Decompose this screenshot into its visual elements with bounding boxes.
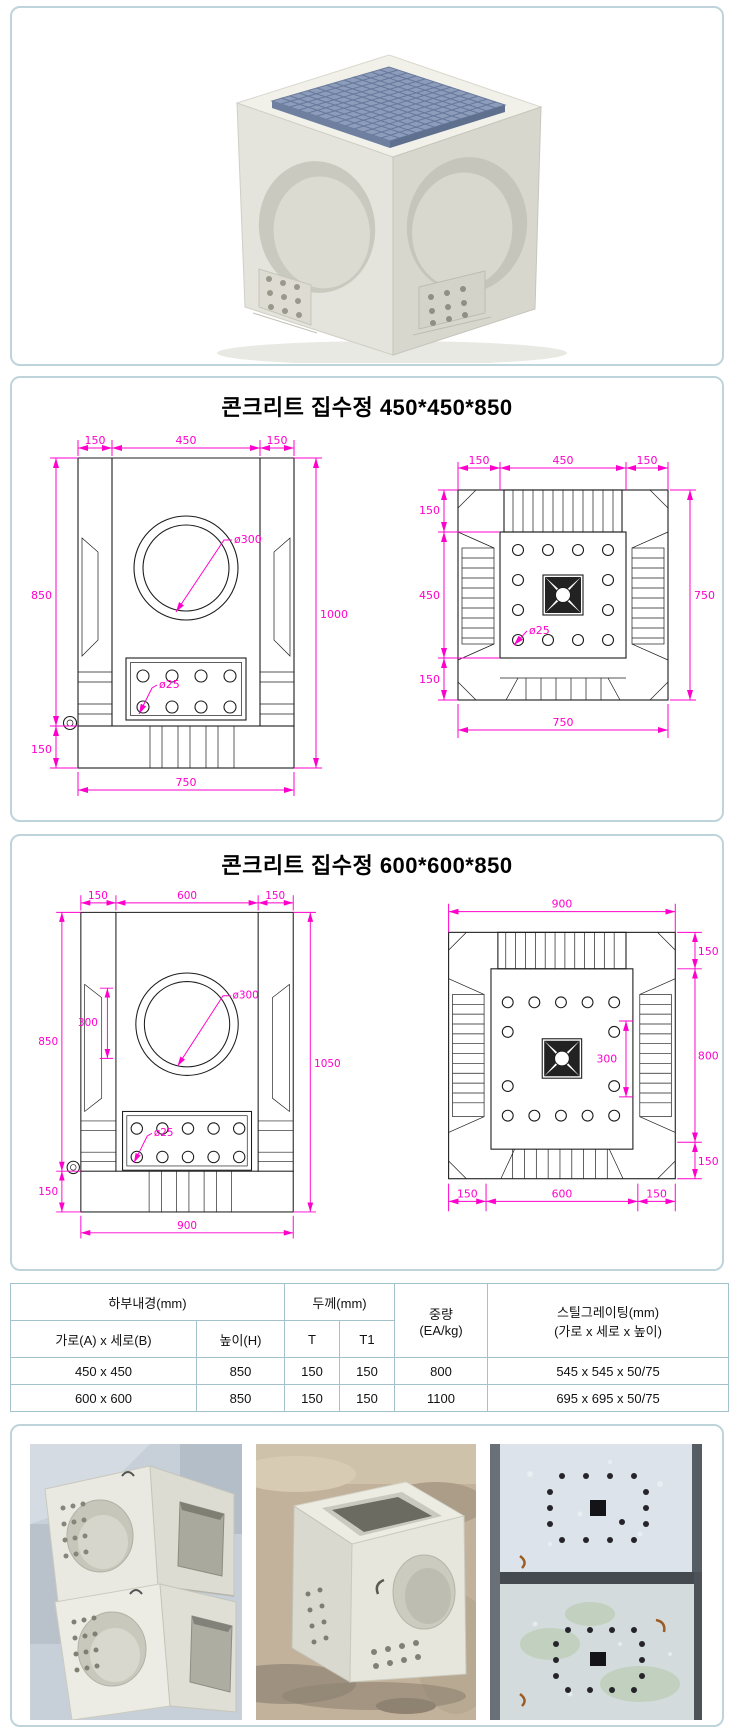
plan-view-450: 150 450 150 150 450 150 750 750 ø25 xyxy=(396,438,721,768)
section-title-600: 콘크리트 집수정 600*600*850 xyxy=(12,848,722,880)
hero-image xyxy=(137,11,597,363)
header-weight-line1: 중량 xyxy=(429,1307,453,1322)
catch-basin-drain-holes-photo xyxy=(490,1444,702,1720)
dim-label: 800 xyxy=(698,1049,719,1062)
dim-label: 150 xyxy=(646,1187,667,1200)
plan-view-600: 900 150 800 150 300 150 600 150 xyxy=(392,888,724,1228)
header-t1: T1 xyxy=(340,1321,395,1358)
header-grating-line2: (가로 x 세로 x 높이) xyxy=(554,1324,662,1339)
dim-label: 150 xyxy=(267,434,288,447)
dim-label: 150 xyxy=(38,1186,58,1198)
stacked-catch-basins-photo xyxy=(30,1444,242,1720)
catch-basin-top-opening-photo xyxy=(256,1444,476,1720)
dim-label: 900 xyxy=(177,1220,197,1232)
dim-label: ø300 xyxy=(234,533,262,546)
lifting-anchor xyxy=(543,575,583,615)
dim-label: 450 xyxy=(553,454,574,467)
drawing-section-450: 콘크리트 집수정 450*450*850 150 450 150 850 150… xyxy=(10,376,724,822)
table-row: 450 x 450 850 150 150 800 545 x 545 x 50… xyxy=(11,1358,729,1385)
dim-label: 150 xyxy=(31,743,52,756)
dim-label: 300 xyxy=(596,1052,617,1065)
section-title-450: 콘크리트 집수정 450*450*850 xyxy=(12,390,722,422)
cell-weight: 1100 xyxy=(395,1385,488,1412)
header-height: 높이(H) xyxy=(197,1321,285,1358)
table-row: 600 x 600 850 150 150 1100 695 x 695 x 5… xyxy=(11,1385,729,1412)
header-grating-line1: 스틸그레이팅(mm) xyxy=(557,1305,659,1320)
cell-t: 150 xyxy=(285,1385,340,1412)
header-thickness: 두께(mm) xyxy=(285,1284,395,1321)
dim-label: 150 xyxy=(88,890,108,902)
header-size: 가로(A) x 세로(B) xyxy=(11,1321,197,1358)
dim-label: 150 xyxy=(637,454,658,467)
drawing-section-600: 콘크리트 집수정 600*600*850 150 600 150 850 150… xyxy=(10,834,724,1271)
table-header-row-1: 하부내경(mm) 두께(mm) 중량(EA/kg) 스틸그레이팅(mm)(가로 … xyxy=(11,1284,729,1321)
photos-panel xyxy=(10,1424,724,1727)
cell-size: 600 x 600 xyxy=(11,1385,197,1412)
header-t: T xyxy=(285,1321,340,1358)
dim-label: 150 xyxy=(457,1187,478,1200)
cell-t1: 150 xyxy=(340,1385,395,1412)
lifting-eye xyxy=(67,1161,79,1173)
cell-t1: 150 xyxy=(340,1358,395,1385)
front-view-450: 150 450 150 850 150 1000 750 ø300 ø25 xyxy=(26,426,386,816)
dim-label: 1050 xyxy=(314,1058,340,1070)
dim-label: 150 xyxy=(419,673,440,686)
cell-grating: 545 x 545 x 50/75 xyxy=(488,1358,729,1385)
cell-size: 450 x 450 xyxy=(11,1358,197,1385)
front-view-600: 150 600 150 850 150 300 1050 900 ø300 ø2… xyxy=(26,882,386,1266)
dim-label: 1000 xyxy=(320,608,348,621)
dim-label: 150 xyxy=(698,1155,719,1168)
header-inner-dim: 하부내경(mm) xyxy=(11,1284,285,1321)
dim-label: 850 xyxy=(31,589,52,602)
spec-table: 하부내경(mm) 두께(mm) 중량(EA/kg) 스틸그레이팅(mm)(가로 … xyxy=(10,1283,729,1412)
dim-label: 900 xyxy=(552,898,573,911)
header-grating: 스틸그레이팅(mm)(가로 x 세로 x 높이) xyxy=(488,1284,729,1358)
cell-grating: 695 x 695 x 50/75 xyxy=(488,1385,729,1412)
dim-label: 450 xyxy=(419,589,440,602)
dim-label: 150 xyxy=(419,504,440,517)
cell-t: 150 xyxy=(285,1358,340,1385)
dim-label: 600 xyxy=(552,1187,573,1200)
dim-label: 150 xyxy=(698,945,719,958)
lifting-eye xyxy=(64,717,77,730)
dim-label: 450 xyxy=(176,434,197,447)
dim-label: 150 xyxy=(85,434,106,447)
dim-label: 850 xyxy=(38,1036,58,1048)
dim-label: ø25 xyxy=(159,678,180,691)
header-weight-line2: (EA/kg) xyxy=(419,1323,462,1338)
dim-label: 750 xyxy=(176,776,197,789)
dim-label: ø300 xyxy=(233,990,259,1002)
dim-label: ø25 xyxy=(529,624,550,637)
dim-label: 150 xyxy=(469,454,490,467)
lifting-anchor xyxy=(542,1039,581,1078)
cell-height: 850 xyxy=(197,1385,285,1412)
drain-hole-plate-600 xyxy=(131,1123,245,1163)
drain-hole-plate-450 xyxy=(137,670,236,713)
dim-label: 150 xyxy=(265,890,285,902)
cell-height: 850 xyxy=(197,1358,285,1385)
dim-label: 750 xyxy=(694,589,715,602)
render-panel xyxy=(10,6,724,366)
header-weight: 중량(EA/kg) xyxy=(395,1284,488,1358)
dim-label: 600 xyxy=(177,890,197,902)
dim-label: 300 xyxy=(78,1017,98,1029)
dim-label: 750 xyxy=(553,716,574,729)
dim-label: ø25 xyxy=(154,1127,174,1139)
cell-weight: 800 xyxy=(395,1358,488,1385)
